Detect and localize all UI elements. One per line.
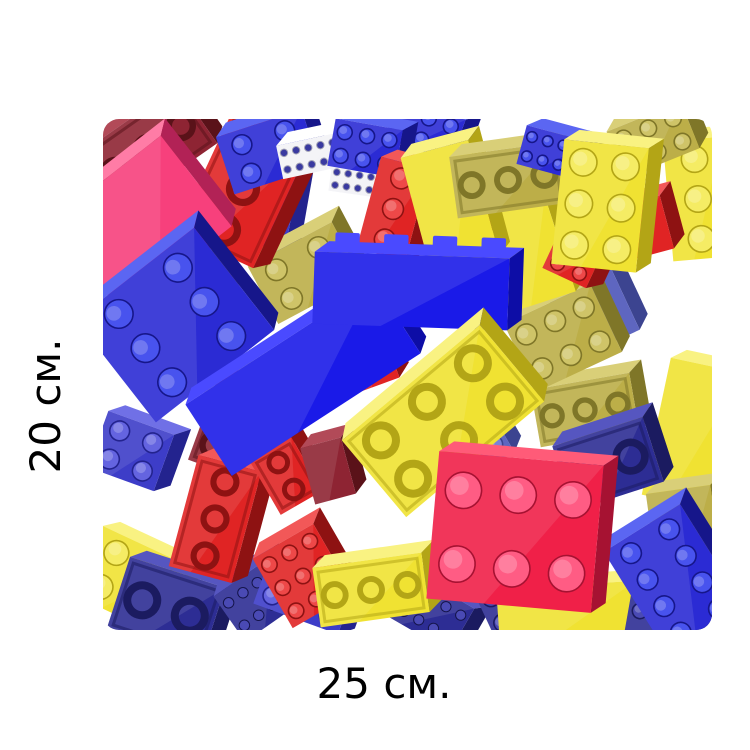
brick-pile-photo (103, 119, 712, 630)
height-dimension-label: 20 см. (25, 339, 67, 474)
product-dimension-card: 20 см. 25 см. (0, 0, 750, 750)
width-dimension-label: 25 см. (317, 663, 452, 705)
brick-pile-art (103, 119, 712, 630)
